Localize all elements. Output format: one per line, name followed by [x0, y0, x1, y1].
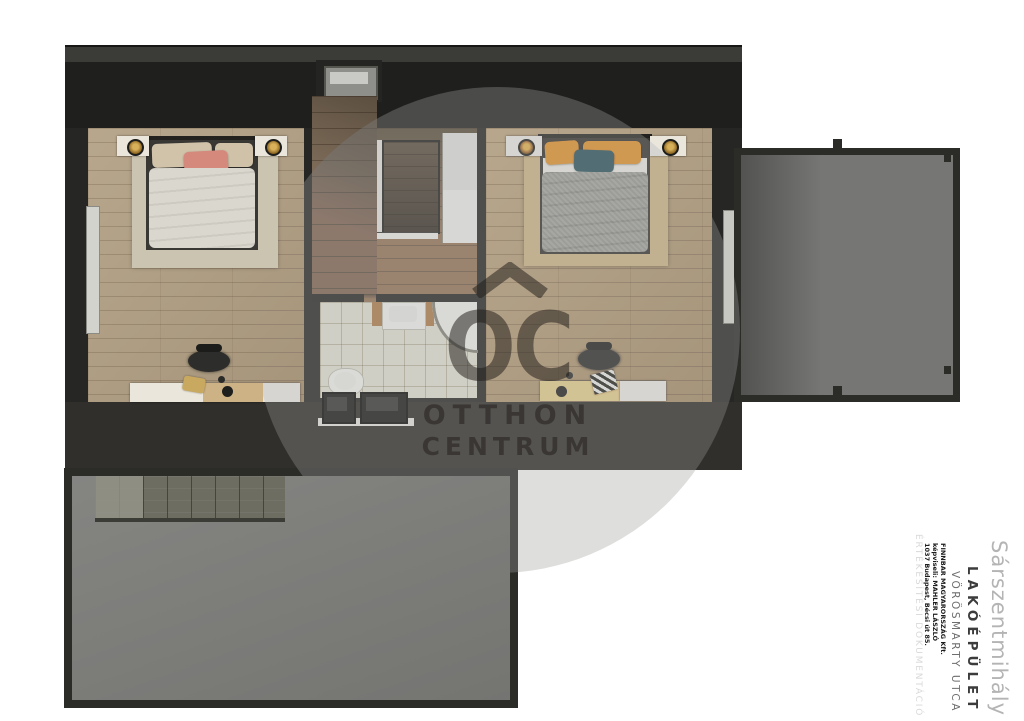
title-developer-address: 1037 Budapest, Bécsi út 85. [923, 543, 931, 655]
stair-top-window-glass [330, 72, 368, 84]
balcony-tick-top-right [944, 154, 951, 162]
title-developer: FINNBAR MAGYARORSZÁG Kft. [939, 543, 947, 655]
title-street: VÖRÖSMARTY UTCA [949, 571, 961, 713]
balcony-shadow [741, 155, 953, 395]
balcony-right [734, 148, 960, 402]
balcony-post-bottom [833, 386, 842, 397]
logo-letters: OC [398, 292, 618, 402]
title-document-type: ÉRTÉKESÍTÉSI DOKUMENTÁCIÓ [913, 534, 923, 717]
balcony-post-top [833, 139, 842, 150]
logo-brand-line2: CENTRUM [398, 432, 618, 461]
office-chair-left [188, 350, 230, 372]
title-developer-block: FINNBAR MAGYARORSZÁG Kft. képviseli: MAH… [923, 543, 947, 655]
desk-left-accessory [222, 386, 233, 397]
roof-tile-strip-rim [95, 518, 285, 522]
title-city: Sárszentmihály [987, 540, 1011, 716]
bedside-lamp-left-b [265, 139, 282, 156]
desk-left-accessory-small [218, 376, 225, 383]
otthon-centrum-logo: OC OTTHON CENTRUM [398, 260, 618, 460]
desk-left-wood-section [203, 383, 263, 402]
logo-brand-line1: OTTHON [398, 400, 618, 431]
bed-left-duvet [149, 168, 255, 248]
title-representative: képviseli: MAHLER LÁSZLÓ [931, 543, 939, 655]
roof-tile-strip-light [95, 476, 143, 520]
floor-plan-image: OC OTTHON CENTRUM Sárszentmihály LAKÓÉPÜ… [0, 0, 1024, 721]
title-building-type: LAKÓÉPÜLET [964, 566, 980, 714]
balcony-tick-bottom-right [944, 366, 951, 374]
office-chair-left-back [196, 344, 222, 352]
bedside-lamp-left-a [127, 139, 144, 156]
bedroom-left-window [86, 206, 100, 334]
